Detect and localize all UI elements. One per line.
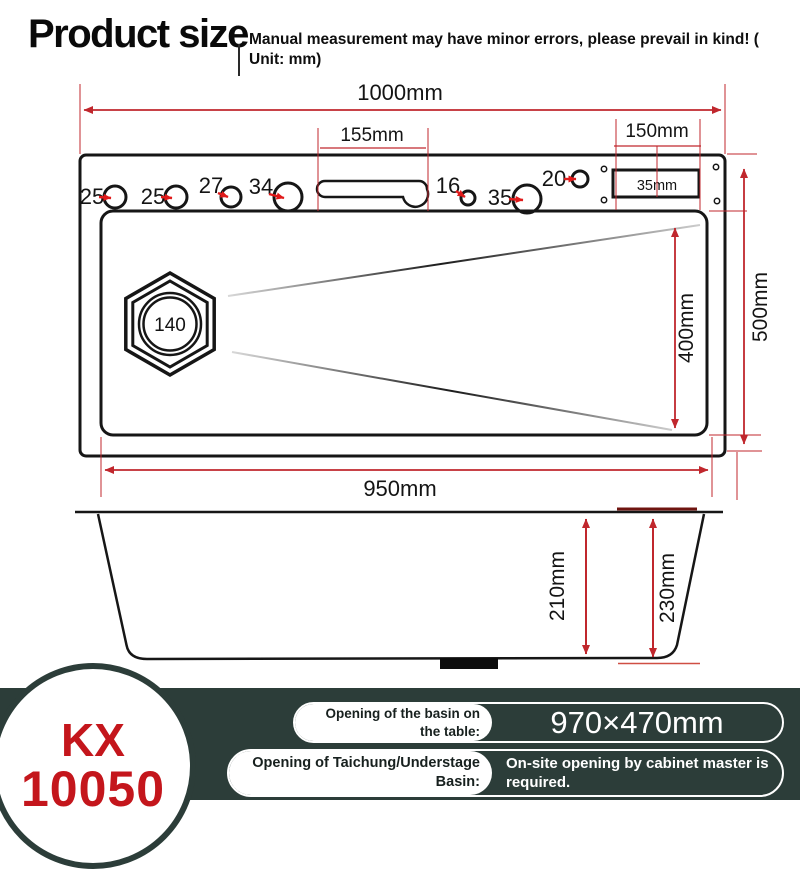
spec-value-countertop: 970×470mm xyxy=(492,704,782,741)
spec-row-countertop-opening: Opening of the basin on the table: 970×4… xyxy=(293,702,784,743)
spec-label-line1: Opening of the basin on xyxy=(326,705,481,723)
spec-row-undermount-opening: Opening of Taichung/Understage Basin: On… xyxy=(227,749,784,797)
spec-label-line2: Basin: xyxy=(436,773,480,792)
model-badge: KX 10050 xyxy=(0,663,196,869)
svg-text:155mm: 155mm xyxy=(340,125,403,146)
spec-value-undermount: On-site opening by cabinet master is req… xyxy=(492,751,782,795)
spec-value-line1: On-site opening by cabinet master is xyxy=(506,754,782,773)
drain-size-label: 140 xyxy=(154,315,186,336)
svg-text:500mm: 500mm xyxy=(749,272,772,342)
svg-text:400mm: 400mm xyxy=(675,293,698,363)
hole-label: 16 xyxy=(436,173,460,198)
spec-label-undermount: Opening of Taichung/Understage Basin: xyxy=(229,751,492,795)
svg-text:210mm: 210mm xyxy=(546,551,569,621)
hole-label: 20 xyxy=(542,166,566,191)
sink-sideview xyxy=(75,509,723,669)
spec-value-line2: required. xyxy=(506,773,782,792)
svg-text:950mm: 950mm xyxy=(363,476,436,501)
model-code-top: KX xyxy=(61,717,125,764)
basin-outline xyxy=(101,211,707,435)
svg-text:1000mm: 1000mm xyxy=(357,80,443,105)
svg-text:150mm: 150mm xyxy=(625,121,688,142)
drain-stub xyxy=(440,658,498,669)
model-code-bottom: 10050 xyxy=(21,763,165,815)
spec-label-line1: Opening of Taichung/Understage xyxy=(252,754,480,773)
svg-text:230mm: 230mm xyxy=(656,553,679,623)
spec-label-line2: the table: xyxy=(420,723,480,741)
hole-label: 35 xyxy=(488,185,512,210)
dimension-210mm: 210mm xyxy=(546,519,586,654)
spec-label-countertop: Opening of the basin on the table: xyxy=(295,704,492,741)
dimension-500mm: 500mm xyxy=(727,154,772,500)
dimension-230mm: 230mm xyxy=(653,519,679,657)
